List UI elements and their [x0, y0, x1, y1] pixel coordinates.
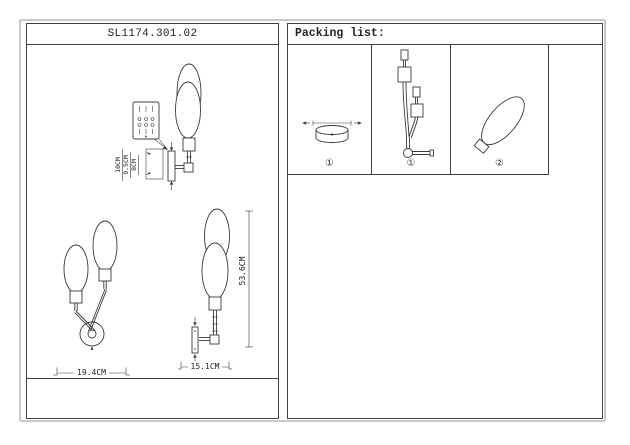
drawing-panel: SL1174.301.02 — [26, 23, 279, 419]
packing-list-panel: Packing list: ① — [287, 23, 603, 419]
top-side-view — [168, 64, 201, 190]
fixture-body-icon — [372, 45, 450, 174]
wall-lamp-technical-drawing: 10CM 9.5CM 8CM — [27, 45, 278, 378]
packing-item-number: ① — [372, 158, 450, 169]
spec-sheet-page: SL1174.301.02 — [0, 0, 630, 445]
dim-bracket-height: 9.5CM — [122, 155, 130, 175]
canopy-icon — [288, 45, 371, 174]
front-view: 19.4CM — [53, 221, 130, 377]
packing-item-number: ① — [288, 158, 371, 169]
side-view: 53.6CM 15.1CM — [178, 209, 253, 371]
screw-holes-callout — [133, 102, 168, 150]
dim-bracket-inner: 8CM — [130, 159, 138, 171]
dim-total-height: 53.6CM — [238, 256, 247, 285]
packing-item-fixture-body: ① — [372, 45, 451, 174]
packing-list-header: Packing list: — [288, 24, 602, 45]
dim-side-width: 15.1CM — [191, 362, 220, 371]
model-number-title: SL1174.301.02 — [27, 24, 278, 45]
dim-front-width: 19.4CM — [77, 368, 106, 377]
technical-drawing-area: 10CM 9.5CM 8CM — [27, 45, 278, 378]
packing-item-number: ② — [451, 158, 548, 169]
glass-shade-icon — [451, 45, 548, 174]
mounting-bracket-dimension-detail: 10CM 9.5CM 8CM — [114, 149, 163, 181]
packing-item-glass-shade: ② — [451, 45, 548, 174]
dim-bracket-depth: 10CM — [114, 157, 122, 173]
title-block-empty-strip — [27, 378, 278, 418]
packing-item-canopy: ① — [288, 45, 372, 174]
packing-list-table: ① — [288, 45, 549, 175]
